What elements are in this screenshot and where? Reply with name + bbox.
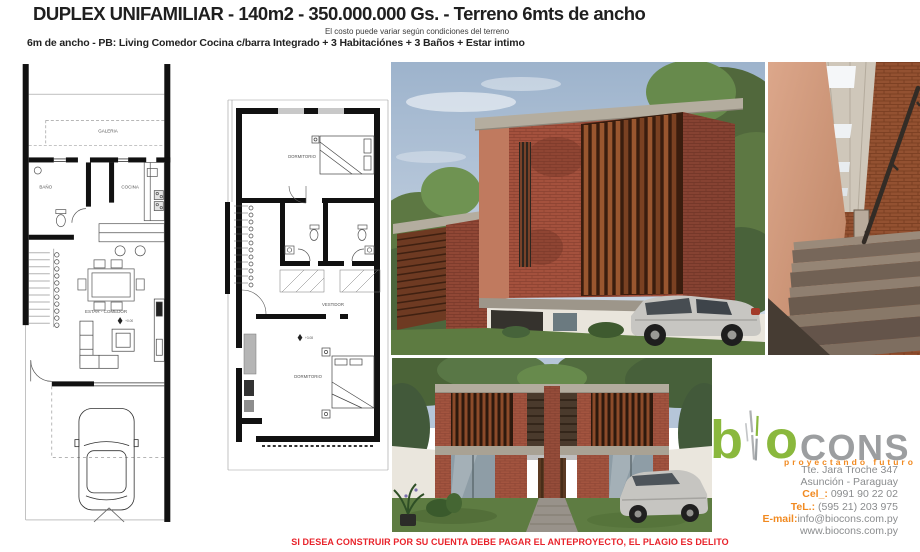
label-cocina: COCINA — [121, 185, 139, 190]
bed-main-icon — [322, 348, 374, 418]
car-plan-icon — [75, 408, 138, 509]
label-galeria: GALERIA — [98, 128, 118, 133]
floor-plan-upper: DORMITORIO VESTIDOR DORMITORIO +3.08 — [222, 98, 394, 494]
floor-plan-ground: GALERIA BAÑO COCINA ESTAR - COMEDOR +0.0… — [12, 58, 180, 530]
window-left — [451, 455, 495, 498]
contact-block: Tte. Jara Troche 347 Asunción - Paraguay… — [700, 464, 898, 537]
label-level-ground: +0.00 — [125, 319, 133, 323]
email-line[interactable]: E-mail:info@biocons.com.py — [700, 513, 898, 525]
label-level-upper: +3.08 — [305, 336, 313, 340]
tel-label: TeL.: — [791, 501, 815, 513]
program-description: 6m de ancho - PB: Living Comedor Cocina … — [27, 37, 525, 49]
label-vestidor: VESTIDOR — [322, 302, 344, 307]
flyer-page: DUPLEX UNIFAMILIAR - 140m2 - 350.000.000… — [0, 0, 920, 552]
skylight — [826, 66, 856, 88]
main-volume — [475, 98, 743, 314]
biocons-logo: b o CONS proyectando futuro — [710, 402, 910, 466]
website-link[interactable]: www.biocons.com.py — [700, 525, 898, 537]
cel-number: 0991 90 22 02 — [828, 488, 898, 500]
tel-number: (595 21) 203 975 — [815, 501, 898, 513]
cel-line: Cel_: 0991 90 22 02 — [700, 488, 898, 500]
label-estar-comedor: ESTAR - COMEDOR — [85, 309, 128, 314]
desk-icons — [244, 334, 256, 412]
logo-letter-o: o — [765, 418, 798, 462]
bamboo-stalks-icon — [744, 406, 764, 464]
front-elevation-render — [392, 358, 712, 532]
address-line1: Tte. Jara Troche 347 — [700, 464, 898, 476]
staircase-photo — [768, 62, 920, 355]
address-line2: Asunción - Paraguay — [700, 476, 898, 488]
label-bano: BAÑO — [39, 184, 52, 190]
page-title: DUPLEX UNIFAMILIAR - 140m2 - 350.000.000… — [33, 3, 645, 25]
logo-letter-b: b — [710, 418, 743, 462]
cel-label: Cel_: — [802, 488, 828, 500]
label-dormitorio-top: DORMITORIO — [288, 154, 317, 159]
cost-note: El costo puede variar según condiciones … — [250, 27, 584, 36]
email-label: E-mail: — [762, 513, 797, 525]
bed-top-icon — [312, 136, 374, 174]
plagiarism-disclaimer: SI DESEA CONSTRUIR POR SU CUENTA DEBE PA… — [250, 537, 770, 547]
tel-line: TeL.: (595 21) 203 975 — [700, 501, 898, 513]
exterior-render-photo — [391, 62, 765, 355]
label-dormitorio-main: DORMITORIO — [294, 374, 323, 379]
email-address[interactable]: info@biocons.com.py — [797, 513, 898, 525]
